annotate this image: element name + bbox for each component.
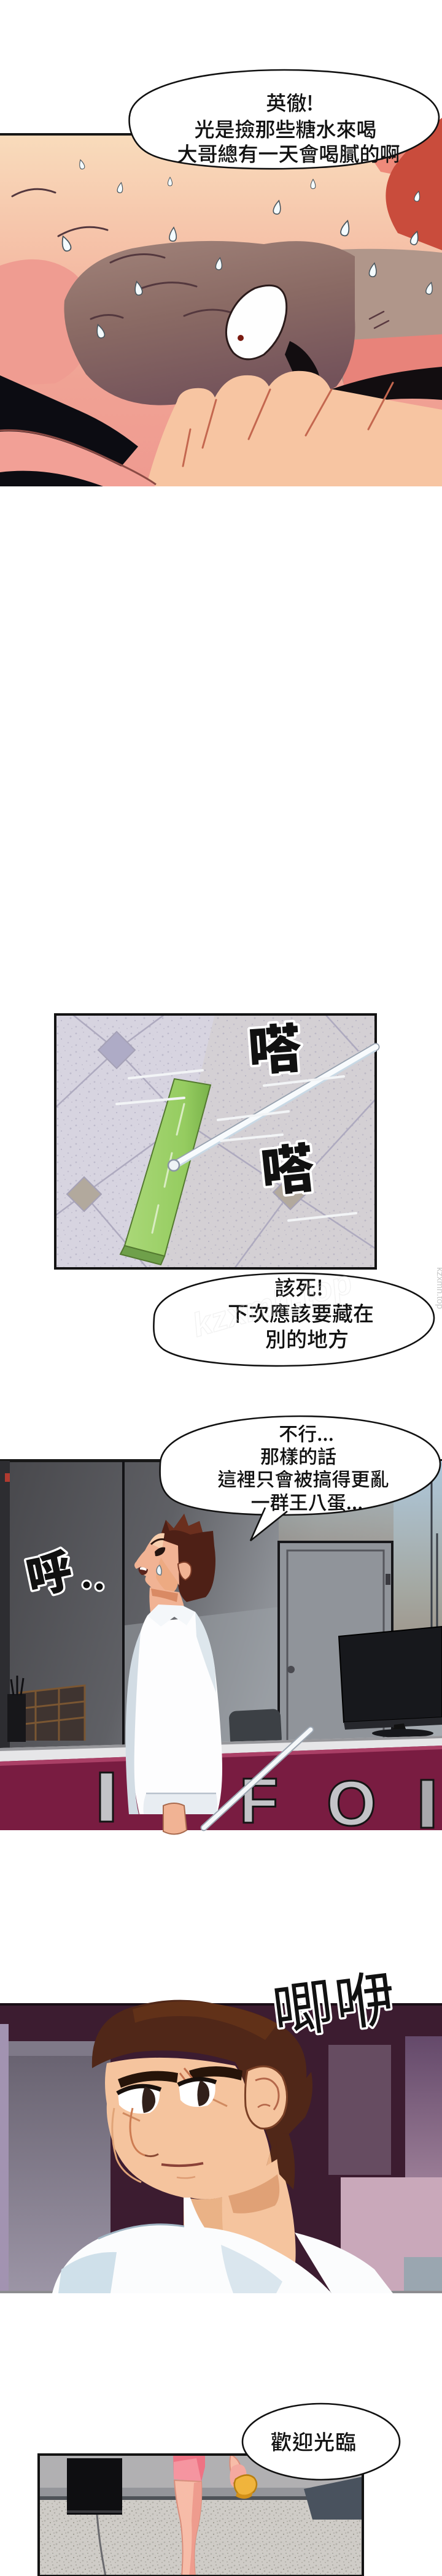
svg-text:kzxmh.top: kzxmh.top [435,1267,442,1309]
svg-text:O: O [327,1768,376,1839]
